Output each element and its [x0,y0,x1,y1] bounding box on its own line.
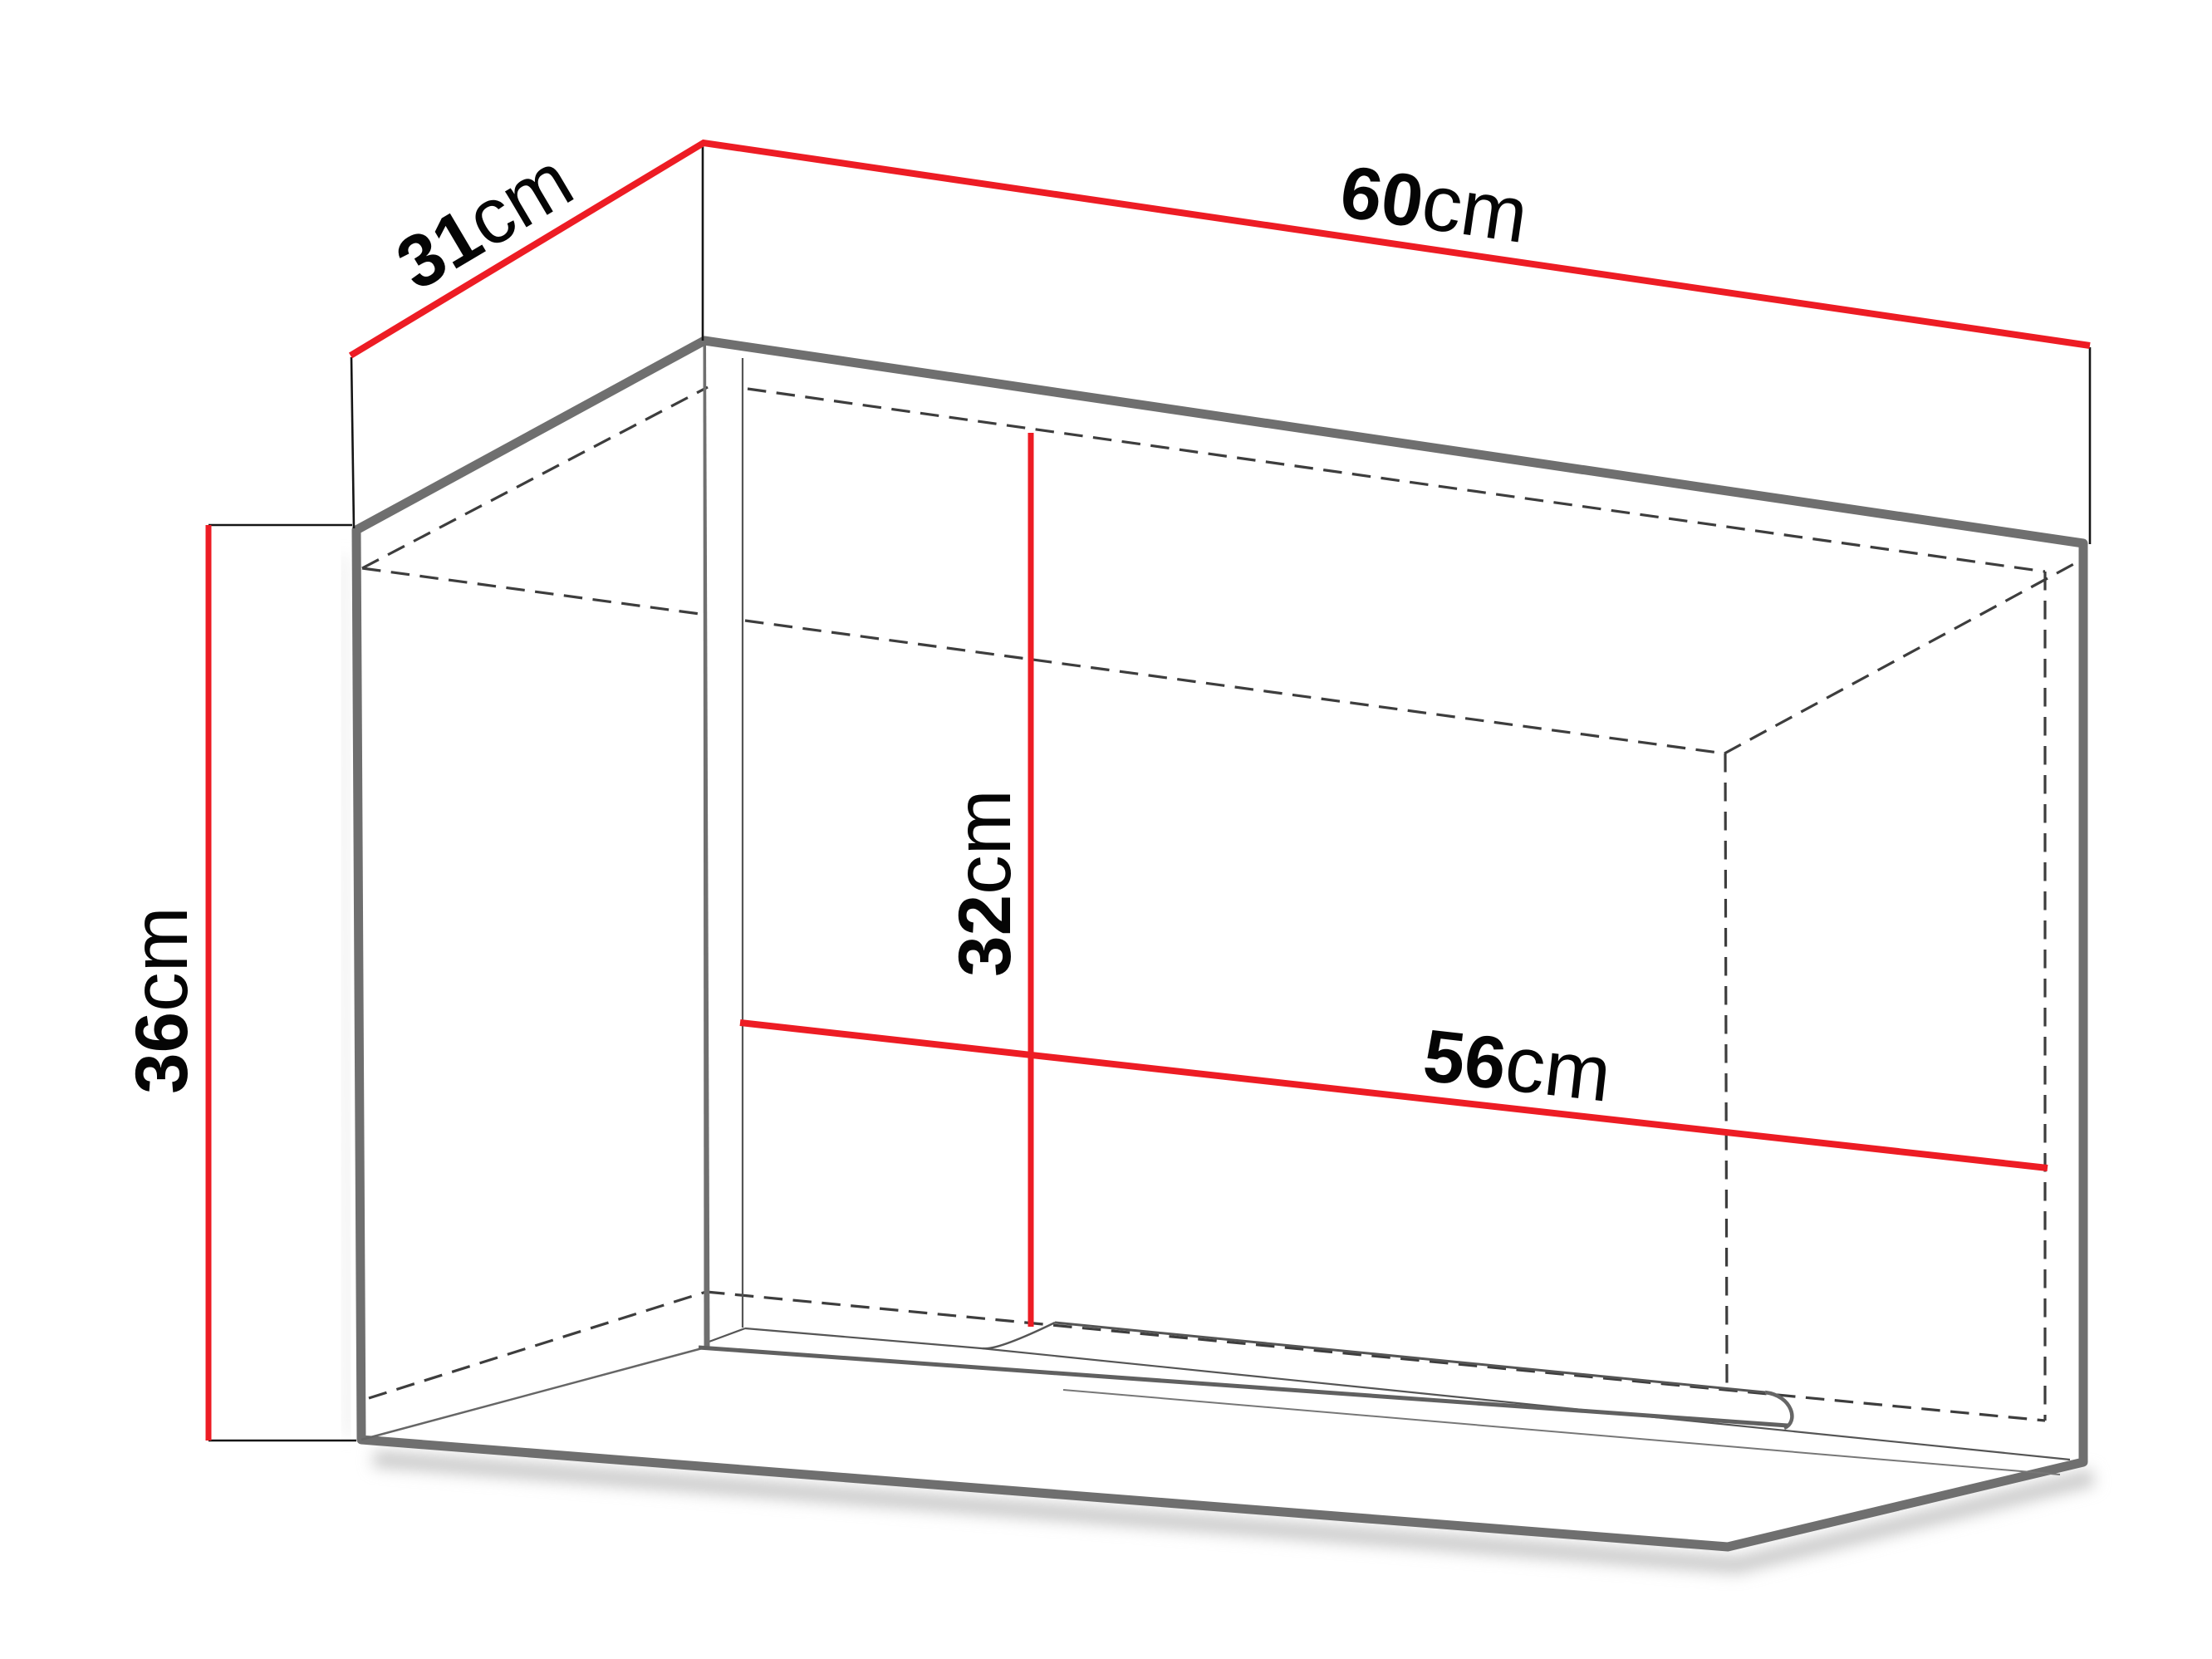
svg-text:36cm: 36cm [116,906,204,1094]
svg-text:32cm: 32cm [939,789,1028,977]
